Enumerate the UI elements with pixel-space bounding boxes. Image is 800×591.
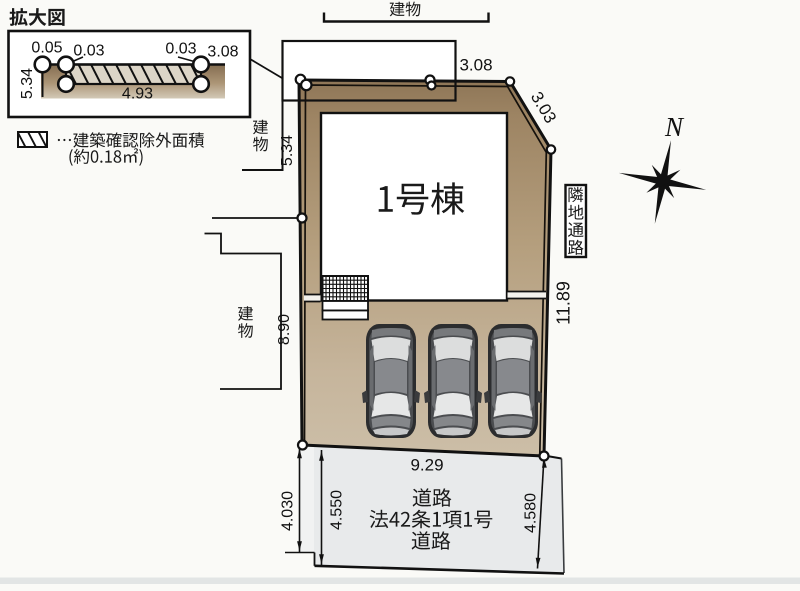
svg-text:4.580: 4.580 [523, 493, 540, 533]
svg-text:4.030: 4.030 [280, 491, 297, 531]
svg-text:5.34: 5.34 [19, 68, 36, 99]
svg-text:4.550: 4.550 [329, 490, 346, 530]
svg-text:0.03: 0.03 [165, 41, 196, 58]
svg-text:3.08: 3.08 [459, 56, 492, 75]
svg-text:5.34: 5.34 [279, 135, 296, 166]
svg-text:8.90: 8.90 [276, 314, 293, 345]
svg-text:9.29: 9.29 [410, 456, 443, 475]
svg-text:4.93: 4.93 [122, 86, 153, 103]
svg-text:11.89: 11.89 [554, 281, 574, 325]
svg-text:0.05: 0.05 [31, 40, 62, 57]
svg-text:3.08: 3.08 [207, 44, 238, 61]
svg-text:0.03: 0.03 [73, 43, 104, 60]
svg-text:N: N [664, 112, 685, 142]
